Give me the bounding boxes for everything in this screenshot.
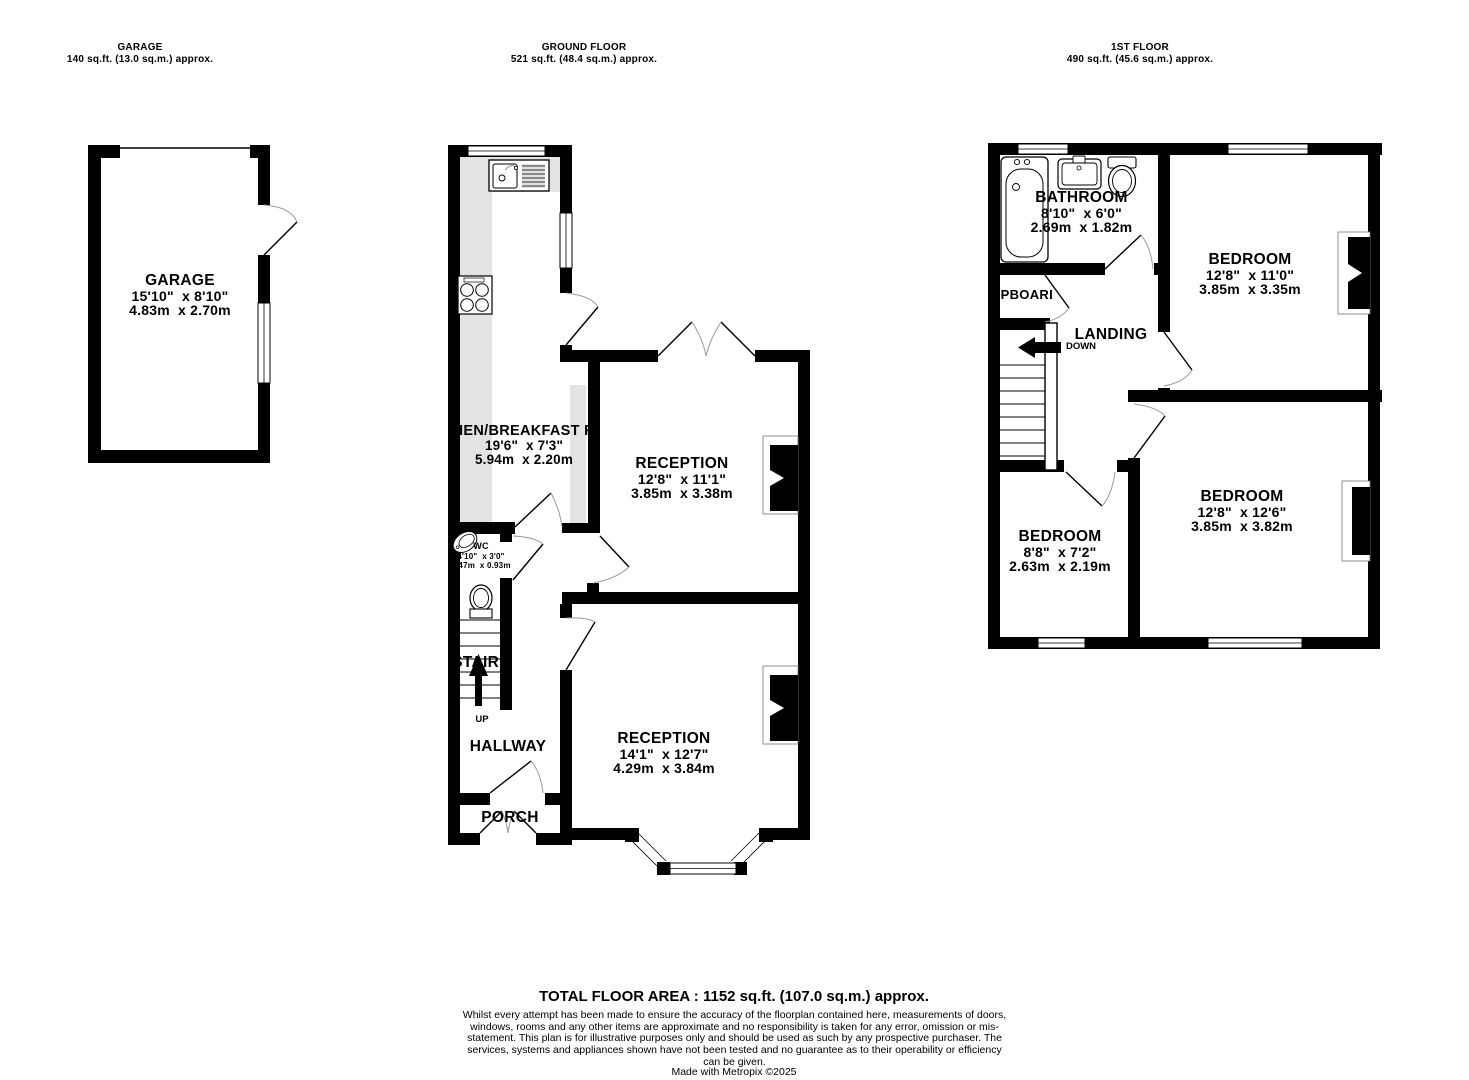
reception1-double-doors (658, 322, 755, 356)
kitchen-room-metric: 5.94m x 2.20m (475, 453, 573, 467)
garage-room-label: GARAGE 15'10" x 8'10" 4.83m x 2.70m (110, 273, 250, 318)
wc-door (513, 536, 543, 580)
bedroom3-room-label: BEDROOM 8'8" x 7'2" 2.63m x 2.19m (987, 529, 1133, 574)
garage-room-metric: 4.83m x 2.70m (129, 303, 231, 318)
garage-header-title: GARAGE (60, 42, 220, 54)
basin-icon (1058, 156, 1101, 189)
bathroom-room-metric: 2.69m x 1.82m (1031, 220, 1133, 235)
garage-header: GARAGE 140 sq.ft. (13.0 sq.m.) approx. (60, 42, 220, 65)
ground-floor-header-title: GROUND FLOOR (484, 42, 684, 54)
porch-room-name: PORCH (481, 810, 538, 826)
hallway-room-label: HALLWAY (463, 739, 553, 755)
bedroom3-room-metric: 2.63m x 2.19m (1009, 559, 1111, 574)
kitchen-side-door (566, 293, 598, 345)
first-floor-header: 1ST FLOOR 490 sq.ft. (45.6 sq.m.) approx… (1040, 42, 1240, 65)
porch-room-label: PORCH (470, 810, 550, 826)
hob-icon (458, 276, 492, 314)
kitchen-room-imperial: 19'6" x 7'3" (485, 439, 563, 453)
wc-room-metric: 1.47m x 0.93m (451, 561, 510, 570)
garage-header-area: 140 sq.ft. (13.0 sq.m.) approx. (60, 54, 220, 66)
reception1-room-metric: 3.85m x 3.38m (631, 486, 733, 501)
front-door (490, 761, 543, 793)
stairs-up-label: UP (462, 715, 502, 725)
bedroom2-room-label: BEDROOM 12'8" x 12'6" 3.85m x 3.82m (1167, 489, 1317, 534)
landing-down-label: DOWN (1056, 342, 1106, 352)
reception1-chimney (763, 436, 798, 514)
first-floor-header-area: 490 sq.ft. (45.6 sq.m.) approx. (1040, 54, 1240, 66)
sink-icon (489, 160, 549, 191)
garage-room-imperial: 15'10" x 8'10" (132, 289, 229, 304)
bathroom-room-imperial: 8'10" x 6'0" (1041, 206, 1122, 221)
first-stairs (1000, 323, 1061, 470)
kitchen-hall-door (515, 493, 562, 527)
ground-floor-header: GROUND FLOOR 521 sq.ft. (48.4 sq.m.) app… (484, 42, 684, 65)
reception2-door (566, 618, 595, 670)
reception2-room-label: RECEPTION 14'1" x 12'7" 4.29m x 3.84m (589, 731, 739, 776)
garage-room-name: GARAGE (145, 273, 215, 289)
bedroom3-room-imperial: 8'8" x 7'2" (1024, 545, 1097, 560)
toilet-icon (470, 585, 492, 618)
reception1-room-name: RECEPTION (635, 456, 728, 472)
bedroom1-room-label: BEDROOM 12'8" x 11'0" 3.85m x 3.35m (1175, 252, 1325, 297)
bathroom-room-label: BATHROOM 8'10" x 6'0" 2.69m x 1.82m (1004, 190, 1159, 235)
bedroom3-room-name: BEDROOM (1018, 529, 1101, 545)
kitchen-room-label: KITCHEN/BREAKFAST ROOM 19'6" x 7'3" 5.94… (448, 424, 600, 467)
bathroom-door (1105, 235, 1153, 269)
reception2-chimney (763, 666, 798, 744)
kitchen-room-name: KITCHEN/BREAKFAST ROOM (448, 424, 600, 439)
bedroom2-room-name: BEDROOM (1200, 489, 1283, 505)
first-floor-header-title: 1ST FLOOR (1040, 42, 1240, 54)
reception1-room-imperial: 12'8" x 11'1" (638, 472, 726, 487)
hallway-room-name: HALLWAY (470, 739, 546, 755)
garage-side-door (264, 205, 297, 255)
cupboard-room-name: CUPBOARD (988, 288, 1052, 302)
wc-room-name: WC (473, 542, 489, 552)
reception2-room-name: RECEPTION (617, 731, 710, 747)
cupboard-room-label: CUPBOARD (988, 288, 1052, 302)
bedroom2-room-imperial: 12'8" x 12'6" (1198, 505, 1287, 520)
wc-room-imperial: 4'10" x 3'0" (457, 552, 504, 561)
bedroom2-room-metric: 3.85m x 3.82m (1191, 519, 1293, 534)
bedroom1-room-metric: 3.85m x 3.35m (1199, 282, 1301, 297)
total-floor-area: TOTAL FLOOR AREA : 1152 sq.ft. (107.0 sq… (434, 988, 1034, 1005)
reception2-room-imperial: 14'1" x 12'7" (620, 747, 709, 762)
bedroom1-room-imperial: 12'8" x 11'0" (1206, 268, 1294, 283)
reception2-room-metric: 4.29m x 3.84m (613, 761, 715, 776)
bathroom-room-name: BATHROOM (1035, 190, 1128, 206)
bedroom1-room-name: BEDROOM (1208, 252, 1291, 268)
stairs-name: STAIRS (452, 655, 510, 671)
garage-window (258, 303, 270, 383)
metropix-credit: Made with Metropix ©2025 (434, 1066, 1034, 1078)
disclaimer-text: Whilst every attempt has been made to en… (462, 1010, 1007, 1069)
stairs-label: STAIRS (445, 655, 517, 671)
bedroom1-door (1164, 332, 1192, 386)
bedroom1-chimney (1338, 232, 1370, 314)
reception1-room-label: RECEPTION 12'8" x 11'1" 3.85m x 3.38m (608, 456, 756, 501)
bedroom2-door (1134, 404, 1165, 458)
bedroom3-door (1066, 472, 1115, 506)
floorplan-page: GARAGE 140 sq.ft. (13.0 sq.m.) approx. G… (0, 0, 1469, 1080)
reception1-door (593, 536, 629, 583)
bedroom2-chimney (1342, 481, 1370, 561)
wc-room-label: WC 4'10" x 3'0" 1.47m x 0.93m (446, 542, 516, 570)
ground-floor-header-area: 521 sq.ft. (48.4 sq.m.) approx. (484, 54, 684, 66)
